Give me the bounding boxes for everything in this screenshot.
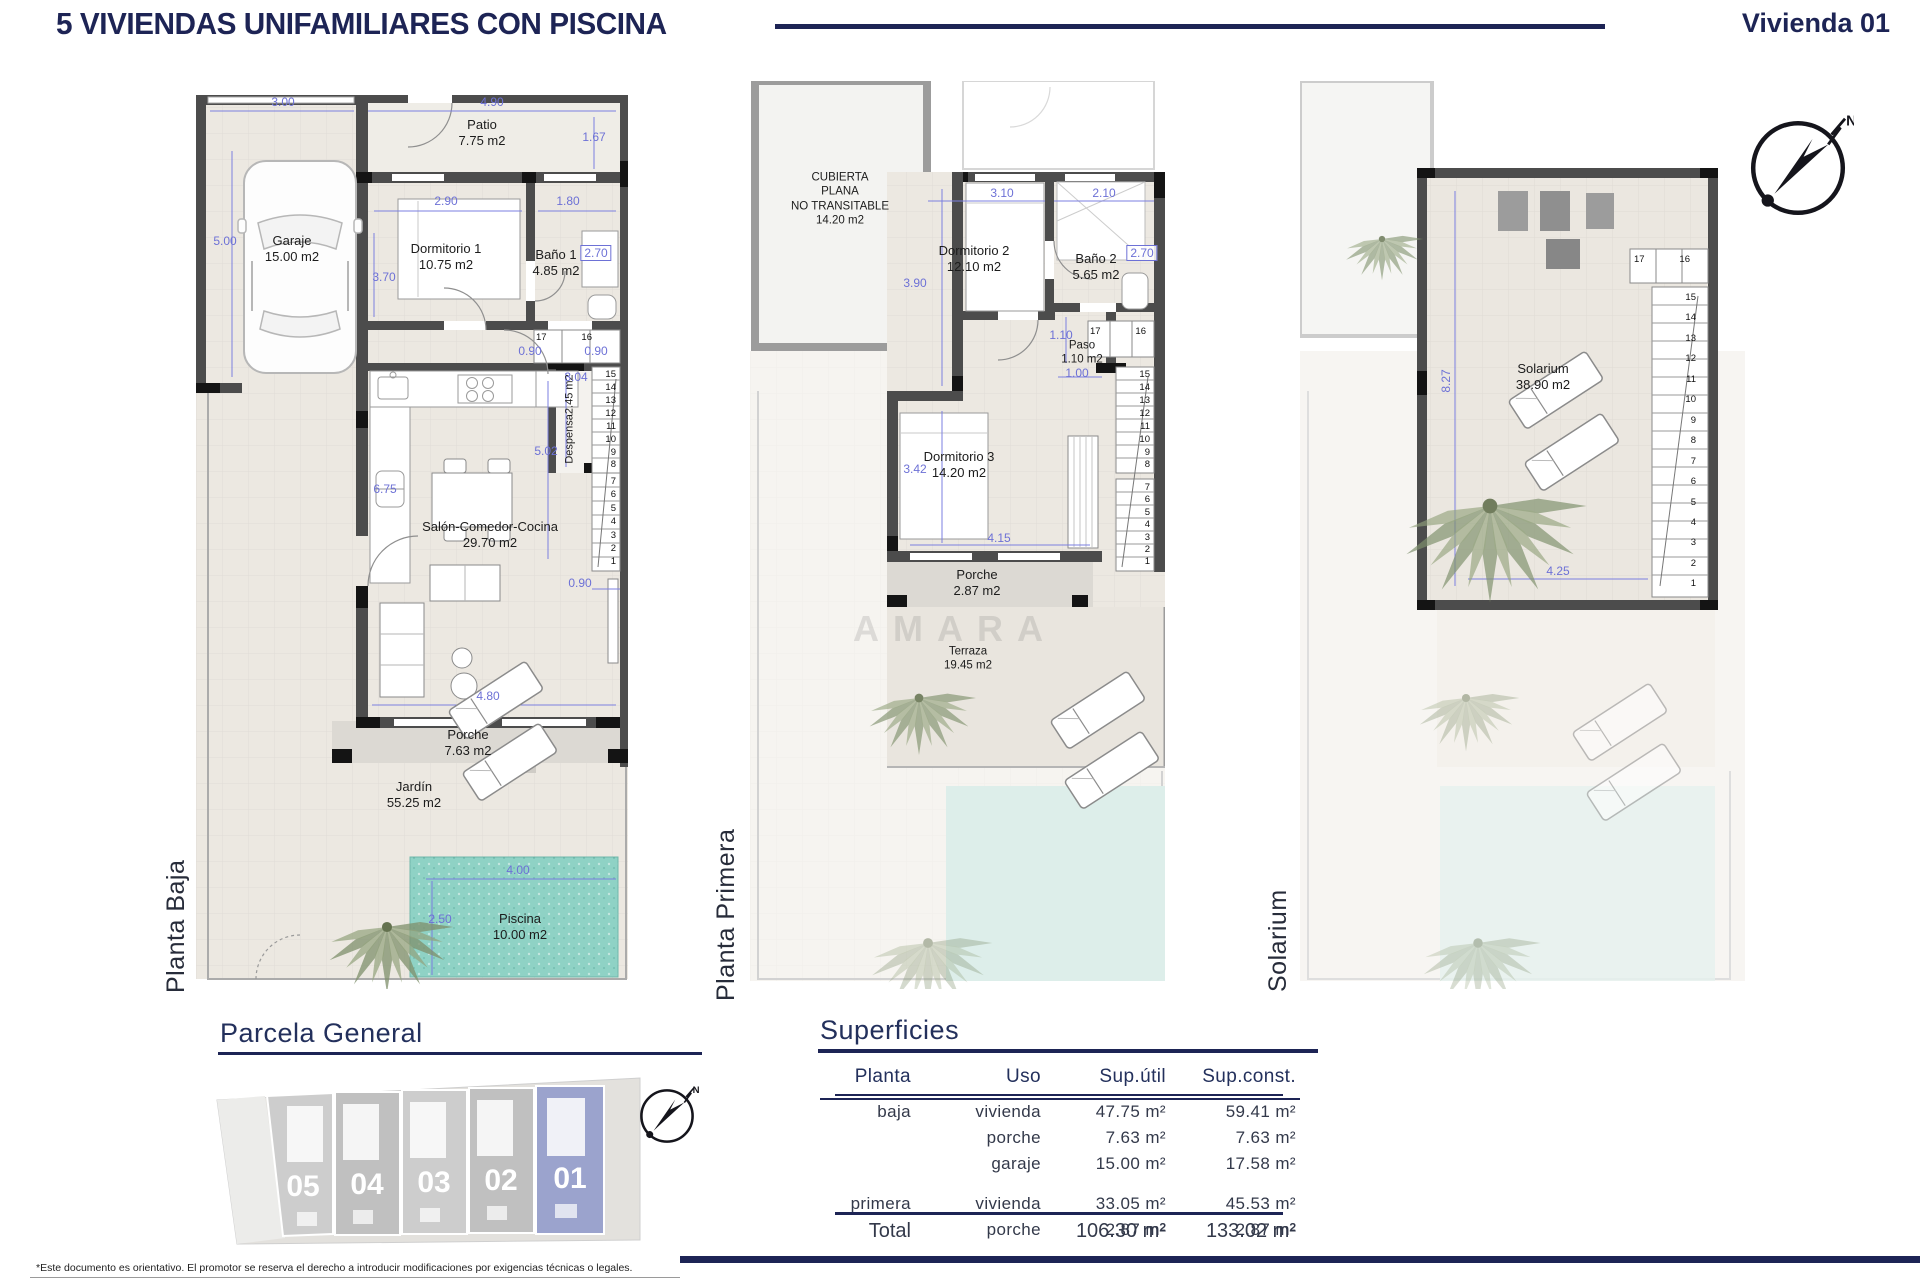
dim-hall-left: 0.90 bbox=[518, 344, 541, 358]
room-label-garaje: Garaje15.00 m2 bbox=[265, 233, 319, 266]
dim-garage-width: 3.00 bbox=[271, 95, 294, 109]
plan-name-planta-primera: Planta Primera bbox=[712, 824, 741, 1006]
room-label-solarium: Solarium38.90 m2 bbox=[1516, 361, 1570, 394]
dim-salon-width: 4.80 bbox=[476, 689, 499, 703]
disclaimer-text: *Este documento es orientativo. El promo… bbox=[36, 1262, 632, 1274]
table-header-rule bbox=[835, 1094, 1283, 1096]
cell-const: 59.41 m² bbox=[1170, 1098, 1300, 1124]
dim-pool-depth: 2.50 bbox=[428, 912, 451, 926]
cell-empty bbox=[820, 1152, 915, 1176]
dim-dorm1-depth: 3.70 bbox=[372, 270, 395, 284]
unit-title: Vivienda 01 bbox=[1680, 8, 1890, 39]
plan-planta-primera: CUBIERTAPLANA NO TRANSITABLE14.20 m2 Dor… bbox=[750, 81, 1165, 989]
stair-numbers-low: 7654321 bbox=[594, 477, 619, 567]
col-header-sup-const: Sup.const. bbox=[1170, 1064, 1300, 1096]
parcela-title: Parcela General bbox=[220, 1018, 423, 1049]
dim-dorm3-width: 4.15 bbox=[987, 531, 1010, 545]
dim-pool-width: 4.00 bbox=[506, 863, 529, 877]
stair-numbers-upper-sol: 1716 bbox=[1634, 255, 1690, 265]
dim-patio-width: 4.90 bbox=[480, 95, 503, 109]
total-label: Total bbox=[820, 1218, 915, 1245]
total-spacer bbox=[915, 1218, 1045, 1245]
cell-util: 47.75 m² bbox=[1045, 1098, 1170, 1124]
room-label-dormitorio2: Dormitorio 212.10 m2 bbox=[939, 243, 1010, 276]
dim-garage-depth: 5.00 bbox=[213, 234, 236, 248]
col-header-uso: Uso bbox=[915, 1064, 1045, 1096]
room-label-dormitorio1: Dormitorio 110.75 m2 bbox=[411, 241, 482, 274]
room-label-bano2: Baño 25.65 m2 bbox=[1073, 251, 1120, 284]
superficies-table: Planta Uso Sup.útil Sup.const. baja vivi… bbox=[820, 1064, 1300, 1242]
superficies-title-rule bbox=[818, 1049, 1318, 1053]
dim-solarium-width: 4.25 bbox=[1546, 564, 1569, 578]
parcela-compass-icon: N bbox=[635, 1084, 699, 1148]
parcela-diagram: 05 04 03 02 01 N bbox=[215, 1072, 715, 1252]
dim-solarium-depth: 8.27 bbox=[1439, 369, 1453, 392]
planta-baja-drawing bbox=[196, 81, 628, 989]
superficies-title: Superficies bbox=[820, 1015, 959, 1046]
stair-numbers-mid-p1: 15141312111098 bbox=[1128, 370, 1153, 470]
floorplan-sheet: { "header": { "title": "5 VIVIENDAS UNIF… bbox=[0, 0, 1920, 1280]
plot-number-01: 01 bbox=[553, 1162, 586, 1196]
room-label-cubierta: CUBIERTAPLANA NO TRANSITABLE14.20 m2 bbox=[791, 170, 889, 228]
room-label-jardin: Jardín55.25 m2 bbox=[387, 779, 441, 812]
table-total-rule bbox=[835, 1212, 1283, 1215]
plan-planta-baja: Patio7.75 m2 Garaje15.00 m2 Dormitorio 1… bbox=[196, 81, 628, 989]
dim-bano2-width: 2.10 bbox=[1092, 186, 1115, 200]
stair-numbers-all-sol: 151413121110987654321 bbox=[1652, 293, 1702, 589]
total-util: 106.30 m² bbox=[1045, 1218, 1170, 1245]
plot-number-02: 02 bbox=[484, 1164, 517, 1198]
total-const: 133.02 m² bbox=[1170, 1218, 1300, 1245]
cell-util: 15.00 m² bbox=[1045, 1152, 1170, 1176]
svg-text:N: N bbox=[693, 1085, 699, 1096]
plan-name-planta-baja: Planta Baja bbox=[162, 850, 191, 1002]
disclaimer-underline bbox=[30, 1277, 680, 1278]
dim-bano1-depth: 2.70 bbox=[580, 245, 611, 261]
room-label-terraza: Terraza19.45 m2 bbox=[944, 645, 992, 674]
room-label-despensa: Despensa2.45 m2 bbox=[563, 374, 576, 463]
page-title: 5 VIVIENDAS UNIFAMILIARES CON PISCINA bbox=[56, 6, 667, 42]
cell-planta-baja: baja bbox=[820, 1098, 915, 1124]
cell-const: 7.63 m² bbox=[1170, 1126, 1300, 1150]
cell-const: 17.58 m² bbox=[1170, 1152, 1300, 1176]
cell-empty bbox=[820, 1126, 915, 1150]
stair-numbers-low-p1: 7654321 bbox=[1128, 483, 1153, 567]
cell-uso: garaje bbox=[915, 1152, 1045, 1176]
dim-paso-depth: 1.10 bbox=[1049, 328, 1072, 342]
plot-number-05: 05 bbox=[286, 1170, 319, 1204]
dim-bano1-width: 1.80 bbox=[556, 194, 579, 208]
plot-number-04: 04 bbox=[350, 1168, 383, 1202]
room-label-piscina: Piscina10.00 m2 bbox=[493, 911, 547, 944]
cell-util: 7.63 m² bbox=[1045, 1126, 1170, 1150]
footer-accent-bar bbox=[680, 1256, 1920, 1263]
room-label-dormitorio3: Dormitorio 314.20 m2 bbox=[924, 449, 995, 482]
stair-numbers-upper-p1: 1716 bbox=[1090, 327, 1146, 337]
stair-numbers-mid: 15141312111098 bbox=[594, 370, 619, 470]
room-label-bano1: Baño 14.85 m2 bbox=[533, 247, 580, 280]
compass-north-letter: N bbox=[1846, 113, 1854, 129]
room-label-salon: Salón-Comedor-Cocina29.70 m2 bbox=[422, 519, 558, 552]
table-group-gap bbox=[820, 1178, 1300, 1190]
dim-salon-depth: 5.02 bbox=[534, 444, 557, 458]
compass-icon: N bbox=[1742, 112, 1854, 224]
dim-patio-depth: 1.67 bbox=[582, 130, 605, 144]
dim-dorm3-depth: 3.42 bbox=[903, 462, 926, 476]
room-label-paso: Paso1.10 m2 bbox=[1061, 339, 1103, 368]
room-label-porche-p1: Porche2.87 m2 bbox=[954, 567, 1001, 600]
col-header-planta: Planta bbox=[820, 1064, 915, 1096]
dim-dorm2-width: 3.10 bbox=[990, 186, 1013, 200]
superficies-total-row: Total 106.30 m² 133.02 m² bbox=[820, 1218, 1300, 1245]
plan-solarium: Solarium38.90 m2 8.27 4.25 1716 15141312… bbox=[1300, 81, 1745, 989]
stair-numbers-upper: 1716 bbox=[536, 333, 592, 343]
col-header-sup-util: Sup.útil bbox=[1045, 1064, 1170, 1096]
cell-uso: vivienda bbox=[915, 1098, 1045, 1124]
room-label-patio: Patio7.75 m2 bbox=[459, 117, 506, 150]
plot-number-03: 03 bbox=[417, 1166, 450, 1200]
dim-salon-left: 6.75 bbox=[373, 482, 396, 496]
dim-dorm1-width: 2.90 bbox=[434, 194, 457, 208]
dim-stair-width: 0.90 bbox=[568, 576, 591, 590]
dim-hall-right: 0.90 bbox=[584, 344, 607, 358]
dim-dorm2-depth: 3.90 bbox=[903, 276, 926, 290]
header-divider-line bbox=[775, 24, 1605, 29]
dim-paso-width: 1.00 bbox=[1065, 366, 1088, 380]
dim-despensa-depth: 3.04 bbox=[564, 370, 587, 384]
plan-name-solarium: Solarium bbox=[1264, 880, 1293, 1002]
room-label-porche: Porche7.63 m2 bbox=[445, 727, 492, 760]
cell-uso: porche bbox=[915, 1126, 1045, 1150]
dim-bano2-depth: 2.70 bbox=[1126, 245, 1157, 261]
parcela-title-rule bbox=[218, 1052, 702, 1055]
